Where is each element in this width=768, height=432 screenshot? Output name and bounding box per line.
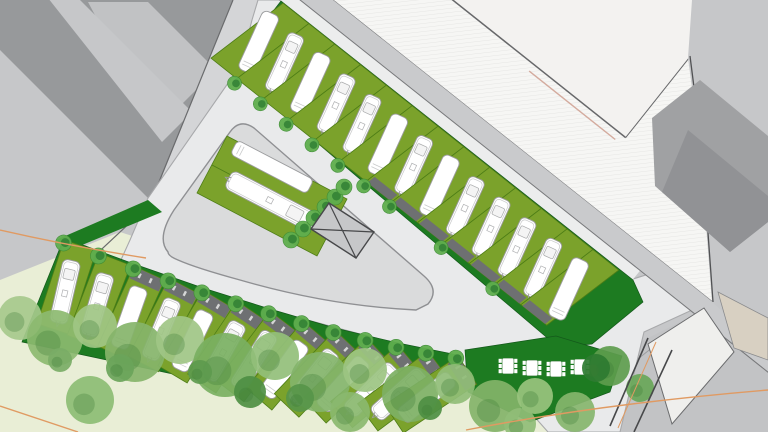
canopy-tree xyxy=(582,354,610,382)
tree-symbol xyxy=(283,232,299,248)
picnic-table-symbol xyxy=(499,359,518,374)
picnic-table-symbol xyxy=(523,361,542,376)
canopy-tree xyxy=(234,376,266,408)
canopy-tree xyxy=(330,392,370,432)
canopy-tree xyxy=(435,364,475,404)
canopy-tree xyxy=(106,354,134,382)
canopy-tree xyxy=(66,376,114,424)
canopy-tree xyxy=(418,396,442,420)
canopy-tree xyxy=(286,384,314,412)
canopy-tree xyxy=(188,360,212,384)
canopy-tree xyxy=(48,348,72,372)
site-plan-canvas xyxy=(0,0,768,432)
picnic-table-symbol xyxy=(547,362,566,377)
tree-symbol xyxy=(336,179,352,195)
canopy-tree xyxy=(343,348,387,392)
site-plan: Campground / caravan park site plan xyxy=(0,0,768,432)
